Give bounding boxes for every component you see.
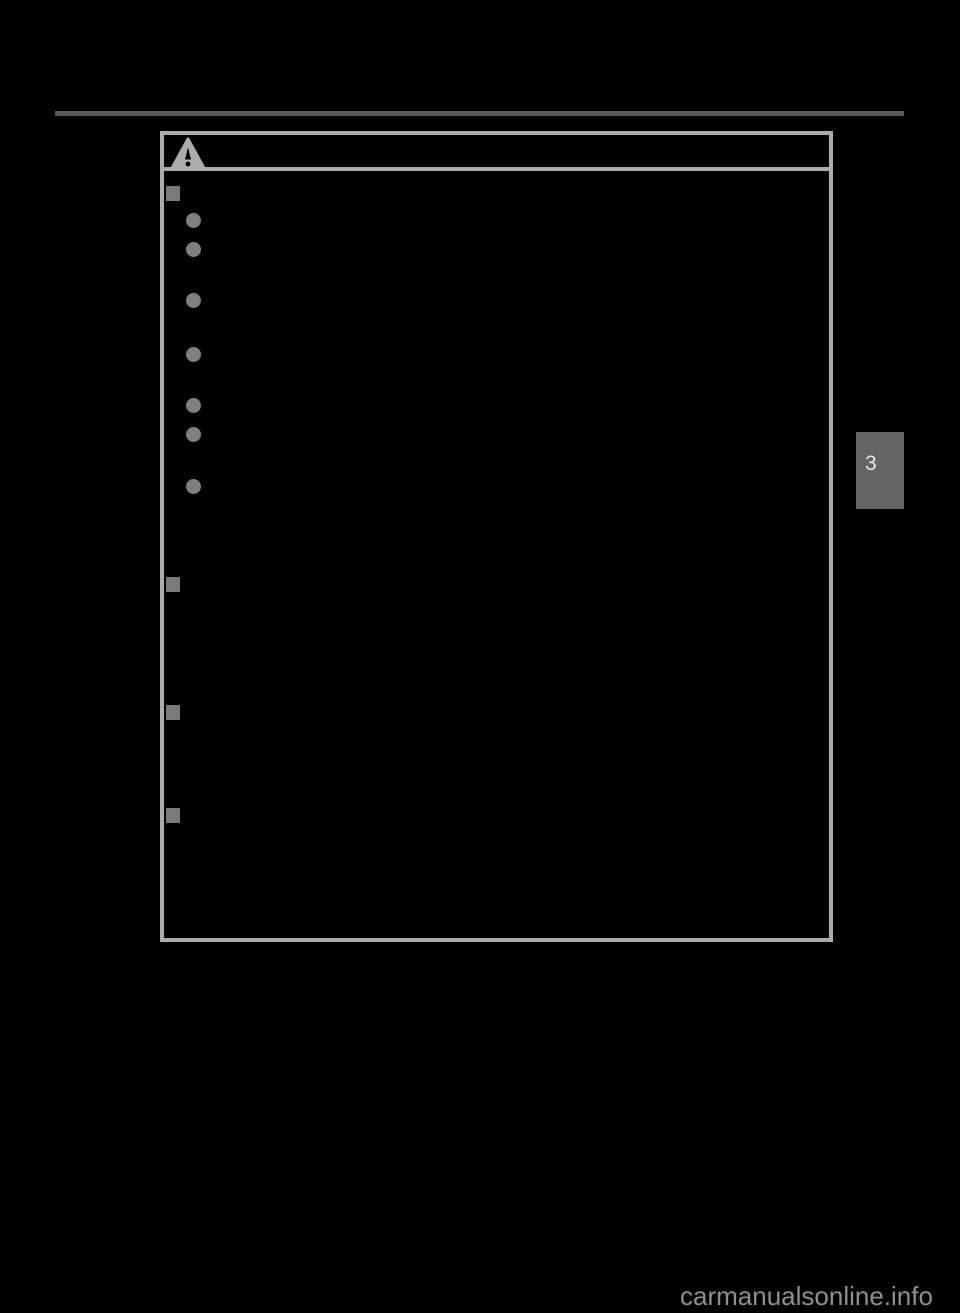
manual-page: 3 carmanualsonline.info <box>0 0 960 1313</box>
header-rule <box>55 111 904 116</box>
warning-triangle-icon <box>170 137 206 171</box>
chapter-number: 3 <box>856 432 904 474</box>
warning-box-body <box>164 171 829 934</box>
chapter-tab: 3 <box>856 432 904 509</box>
warning-box-header <box>164 135 829 171</box>
watermark-text: carmanualsonline.info <box>680 1283 933 1309</box>
warning-box <box>160 131 833 942</box>
